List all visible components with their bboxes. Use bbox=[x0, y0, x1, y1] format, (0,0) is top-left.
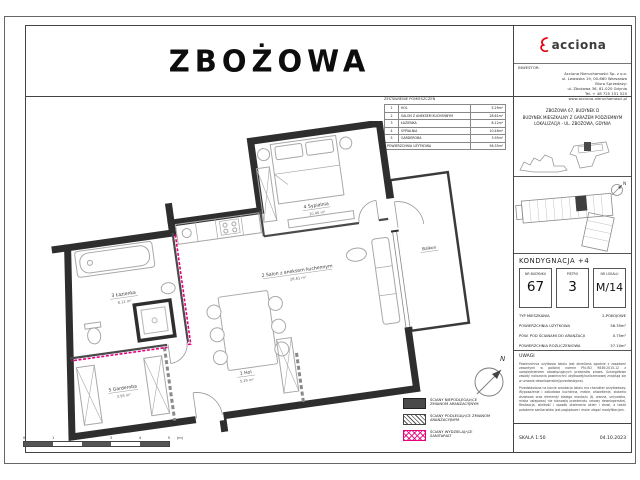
legend-label: ŚCIANY WYDZIELAJĄCE SANITARIAT bbox=[430, 430, 494, 439]
floor-number-label: PIĘTRO bbox=[567, 272, 579, 276]
building-number-value: 67 bbox=[527, 279, 544, 295]
scale-unit: (m) bbox=[177, 436, 183, 440]
right-panel: acciona INWESTOR: Acciona Nieruchomości … bbox=[513, 26, 631, 452]
scale-tick: 5 bbox=[168, 436, 170, 440]
floor-plate-map: N bbox=[514, 176, 631, 253]
notes-title: UWAGI bbox=[519, 354, 626, 359]
room-area: 28.61m² bbox=[471, 112, 506, 120]
date-label: 04.10.2023 bbox=[600, 436, 626, 441]
building-number-box: NR BUDYNKU 67 bbox=[519, 268, 552, 308]
sanitary-wall-swatch bbox=[403, 430, 426, 441]
rooms-schedule-title: ZESTAWIENIE POMIESZCZEŃ bbox=[384, 97, 506, 101]
legend-label: ŚCIANY PODLEGAJĄCE ZMIANOM ARANŻACYJNYM bbox=[430, 414, 494, 423]
floor-number-box: PIĘTRO 3 bbox=[556, 268, 589, 308]
param-label: TYP MIESZKANIA bbox=[519, 314, 550, 318]
highlighted-building bbox=[584, 142, 591, 151]
acciona-flame-icon bbox=[539, 37, 550, 52]
svg-text:N: N bbox=[500, 355, 506, 363]
highlighted-unit bbox=[575, 195, 587, 211]
unit-number-label: NR LOKALU bbox=[601, 272, 619, 276]
acciona-wordmark: acciona bbox=[552, 38, 607, 52]
sheet-footer: SKALA 1:50 04.10.2023 bbox=[514, 423, 631, 452]
param-value: 57.10m² bbox=[610, 344, 626, 348]
notes-paragraph: Przedstawiona na karcie aranżacja lokalu… bbox=[519, 386, 626, 412]
project-line: BUDYNEK MIESZKALNY Z GARAŻEM PODZIEMNYM bbox=[523, 115, 623, 122]
title-block: ZBOŻOWA bbox=[26, 26, 513, 96]
scale-label: SKALA 1:50 bbox=[519, 436, 546, 441]
project-line: LOKALIZACJA - UL. ZBOŻOWA, GDYNIA bbox=[534, 121, 610, 128]
svg-text:N: N bbox=[623, 181, 626, 187]
scale-tick: 1 bbox=[52, 436, 54, 440]
notes-section: UWAGI Powierzchnia użytkowa lokalu jest … bbox=[514, 350, 631, 423]
table-row: 2 SALON Z ANEKSEM KUCHENNYM 28.61m² bbox=[385, 112, 506, 120]
project-line: ZBOŻOWA 67, BUDYNEK D bbox=[546, 108, 599, 115]
param-label: POWIERZCHNIA ROZLICZENIOWA bbox=[519, 344, 580, 348]
param-value: 56.35m² bbox=[610, 324, 626, 328]
param-value: 0.75m² bbox=[613, 334, 626, 338]
project-logo: ZBOŻOWA bbox=[169, 43, 371, 79]
developer-logo: acciona bbox=[514, 26, 631, 64]
room-area: 5.29m² bbox=[471, 105, 506, 113]
scale-bar: 0 1 2 3 4 5 (m) bbox=[23, 436, 185, 447]
building-number-label: NR BUDYNKU bbox=[525, 272, 546, 276]
unit-number-value: M/14 bbox=[596, 281, 623, 294]
scale-tick: 2 bbox=[81, 436, 83, 440]
mini-north-icon: N bbox=[612, 181, 627, 196]
scale-tick: 4 bbox=[139, 436, 141, 440]
notes-paragraph: Powierzchnia użytkowa lokalu jest określ… bbox=[519, 362, 626, 384]
param-value: 2-POKOJOWE bbox=[602, 314, 626, 318]
scale-tick: 3 bbox=[110, 436, 112, 440]
project-description: ZBOŻOWA 67, BUDYNEK D BUDYNEK MIESZKALNY… bbox=[514, 97, 631, 139]
exterior-walls bbox=[35, 123, 417, 437]
solid-wall-swatch bbox=[403, 398, 426, 409]
site-location-map bbox=[514, 139, 631, 176]
param-label: POWIERZCHNIA UŻYTKOWA bbox=[519, 324, 570, 328]
scale-bar-graphic bbox=[23, 441, 170, 447]
legend: ŚCIANY NIEPODLEGAJĄCE ZMIANOM ARANŻACYJN… bbox=[403, 398, 503, 446]
param-label: POW. POD ŚCIANAMI DO ARANŻACJI bbox=[519, 334, 585, 338]
room-no: 1 bbox=[385, 105, 399, 113]
room-name: SALON Z ANEKSEM KUCHENNYM bbox=[399, 112, 471, 120]
room-name: HOL bbox=[399, 105, 471, 113]
sheet-frame: ZBOŻOWA acciona INWESTOR: Acciona Nieruc… bbox=[25, 25, 632, 453]
room-no: 2 bbox=[385, 112, 399, 120]
legend-item: ŚCIANY WYDZIELAJĄCE SANITARIAT bbox=[403, 430, 503, 441]
legend-item: ŚCIANY PODLEGAJĄCE ZMIANOM ARANŻACYJNYM bbox=[403, 414, 503, 425]
investor-block: INWESTOR: Acciona Nieruchomości Sp. z o.… bbox=[514, 64, 631, 97]
storey-header: KONDYGNACJA +4 bbox=[514, 253, 631, 266]
unit-parameters: TYP MIESZKANIA2-POKOJOWE POWIERZCHNIA UŻ… bbox=[514, 310, 631, 350]
unit-id-boxes: NR BUDYNKU 67 PIĘTRO 3 NR LOKALU M/14 bbox=[514, 266, 631, 310]
shower bbox=[134, 300, 175, 341]
hatch-wall-swatch bbox=[403, 414, 426, 425]
floor-number-value: 3 bbox=[568, 279, 577, 295]
table-row: 1 HOL 5.29m² bbox=[385, 105, 506, 113]
unit-number-box: NR LOKALU M/14 bbox=[593, 268, 626, 308]
scale-tick: 0 bbox=[23, 436, 25, 440]
north-compass-icon: N bbox=[470, 351, 512, 403]
